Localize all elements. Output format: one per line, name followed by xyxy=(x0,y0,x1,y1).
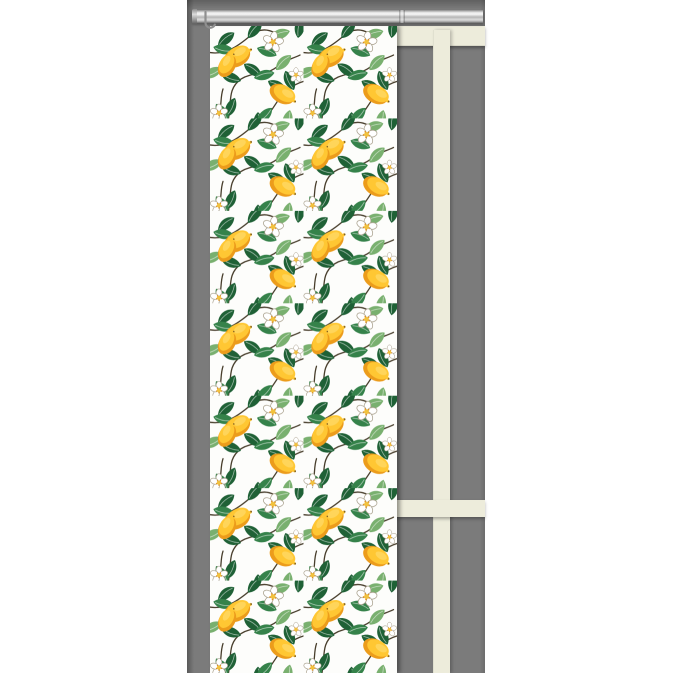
curtain-rail xyxy=(192,10,483,23)
rail-joint xyxy=(399,10,405,23)
product-image xyxy=(0,0,673,673)
curtain-panel xyxy=(210,26,397,673)
curtain-hook xyxy=(202,11,216,34)
photo-scene xyxy=(187,0,485,673)
rail-end-cap xyxy=(192,9,197,24)
window-frame-mullion xyxy=(433,30,450,673)
lemon-pattern xyxy=(210,26,397,673)
